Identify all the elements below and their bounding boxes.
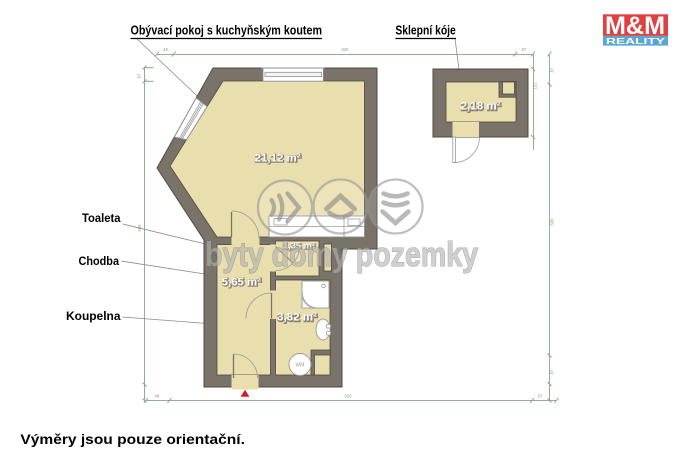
svg-text:Obývací pokoj s kuchyňským kou: Obývací pokoj s kuchyňským koutem xyxy=(131,24,323,38)
svg-text:87: 87 xyxy=(550,369,555,374)
svg-text:byty domy pozemky: byty domy pozemky xyxy=(205,236,478,274)
svg-text:REALITY: REALITY xyxy=(606,36,666,46)
svg-text:87: 87 xyxy=(550,67,555,72)
svg-text:97: 97 xyxy=(522,47,527,52)
svg-text:97: 97 xyxy=(538,394,543,399)
svg-text:Koupelna: Koupelna xyxy=(66,309,121,323)
svg-text:620: 620 xyxy=(345,394,353,399)
svg-text:620: 620 xyxy=(342,47,350,52)
svg-text:21,12 m²: 21,12 m² xyxy=(255,152,301,164)
svg-text:Výměry jsou pouze orientační.: Výměry jsou pouze orientační. xyxy=(20,431,245,447)
svg-text:5,65 m²: 5,65 m² xyxy=(222,276,262,288)
svg-text:Toaleta: Toaleta xyxy=(82,211,121,225)
svg-text:152: 152 xyxy=(533,82,538,90)
svg-text:87: 87 xyxy=(137,73,142,78)
svg-text:595: 595 xyxy=(550,218,555,226)
svg-text:WM: WM xyxy=(296,363,305,369)
svg-text:3,82 m²: 3,82 m² xyxy=(277,311,317,323)
svg-text:Chodba: Chodba xyxy=(79,254,120,268)
svg-text:2,18 m²: 2,18 m² xyxy=(461,100,501,112)
svg-text:48: 48 xyxy=(163,47,168,52)
svg-text:Sklepní kóje: Sklepní kóje xyxy=(395,24,455,38)
svg-text:48: 48 xyxy=(155,394,160,399)
